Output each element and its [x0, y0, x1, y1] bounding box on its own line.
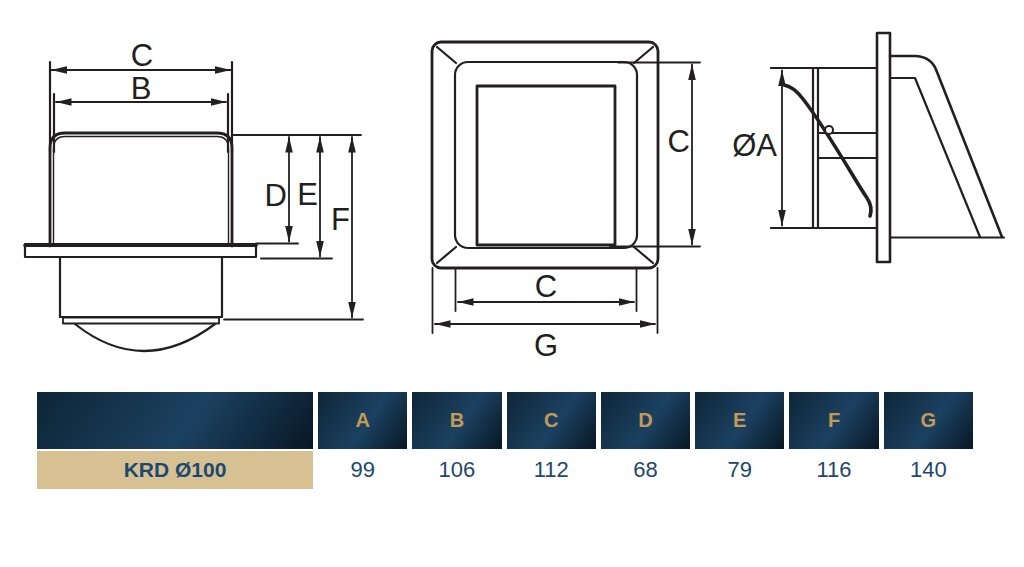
dim-label-face-c-vertical: C	[668, 124, 690, 159]
front-dome-arc	[75, 324, 215, 351]
front-spigot	[60, 257, 222, 317]
col-header-blank	[37, 392, 313, 449]
front-body-inner	[54, 137, 229, 247]
face-opening	[477, 86, 615, 245]
side-hood-outer	[890, 56, 1002, 237]
face-bevel-tl	[437, 47, 456, 63]
dim-label-front-b: B	[131, 71, 152, 106]
col-header-b: B	[412, 392, 501, 449]
front-body-outer	[50, 133, 232, 246]
col-header-e: E	[695, 392, 784, 449]
dim-label-face-c-horizontal: C	[535, 269, 557, 304]
face-inner-frame	[455, 62, 637, 248]
value-d: 68	[601, 451, 690, 489]
value-c: 112	[507, 451, 596, 489]
value-a: 99	[318, 451, 407, 489]
col-header-f: F	[789, 392, 878, 449]
face-view: C C G	[432, 42, 700, 363]
dim-label-front-e: E	[297, 177, 318, 212]
dim-label-face-g: G	[534, 328, 558, 363]
front-spigot-rim	[63, 318, 219, 324]
value-g: 140	[884, 451, 973, 489]
face-bevel-bl	[437, 247, 456, 263]
side-hood-inner	[890, 78, 980, 237]
face-outer-frame	[432, 42, 658, 268]
col-header-g: G	[884, 392, 973, 449]
value-e: 79	[695, 451, 784, 489]
dim-side-diameter: ØA	[732, 68, 815, 228]
dim-front-vertical: D E F	[224, 135, 363, 320]
row-label-model: KRD Ø100	[37, 451, 313, 489]
front-view: C B D E F	[25, 38, 363, 351]
dim-face-c-horizontal: C	[456, 268, 637, 311]
face-bevel-tr	[634, 47, 653, 63]
page: C B D E F	[0, 0, 1024, 567]
dim-label-side-diameter: ØA	[732, 128, 777, 163]
side-view: ØA	[732, 33, 1004, 262]
face-bevel-br	[634, 247, 653, 263]
col-header-c: C	[507, 392, 596, 449]
side-backdraft-flap	[784, 85, 871, 216]
dim-face-c-vertical: C	[610, 63, 700, 247]
dim-front-b: B	[54, 71, 228, 152]
spec-table: A B C D E F G KRD Ø100 99 106 112 68 79 …	[37, 392, 973, 489]
technical-drawing: C B D E F	[0, 0, 1024, 388]
dim-label-front-c: C	[131, 38, 153, 73]
value-f: 116	[789, 451, 878, 489]
side-wall-plate	[877, 33, 890, 262]
col-header-d: D	[601, 392, 690, 449]
col-header-a: A	[318, 392, 407, 449]
value-b: 106	[412, 451, 501, 489]
dim-label-front-f: F	[331, 202, 350, 237]
dim-label-front-d: D	[265, 178, 287, 213]
side-flap-pivot	[825, 126, 833, 134]
